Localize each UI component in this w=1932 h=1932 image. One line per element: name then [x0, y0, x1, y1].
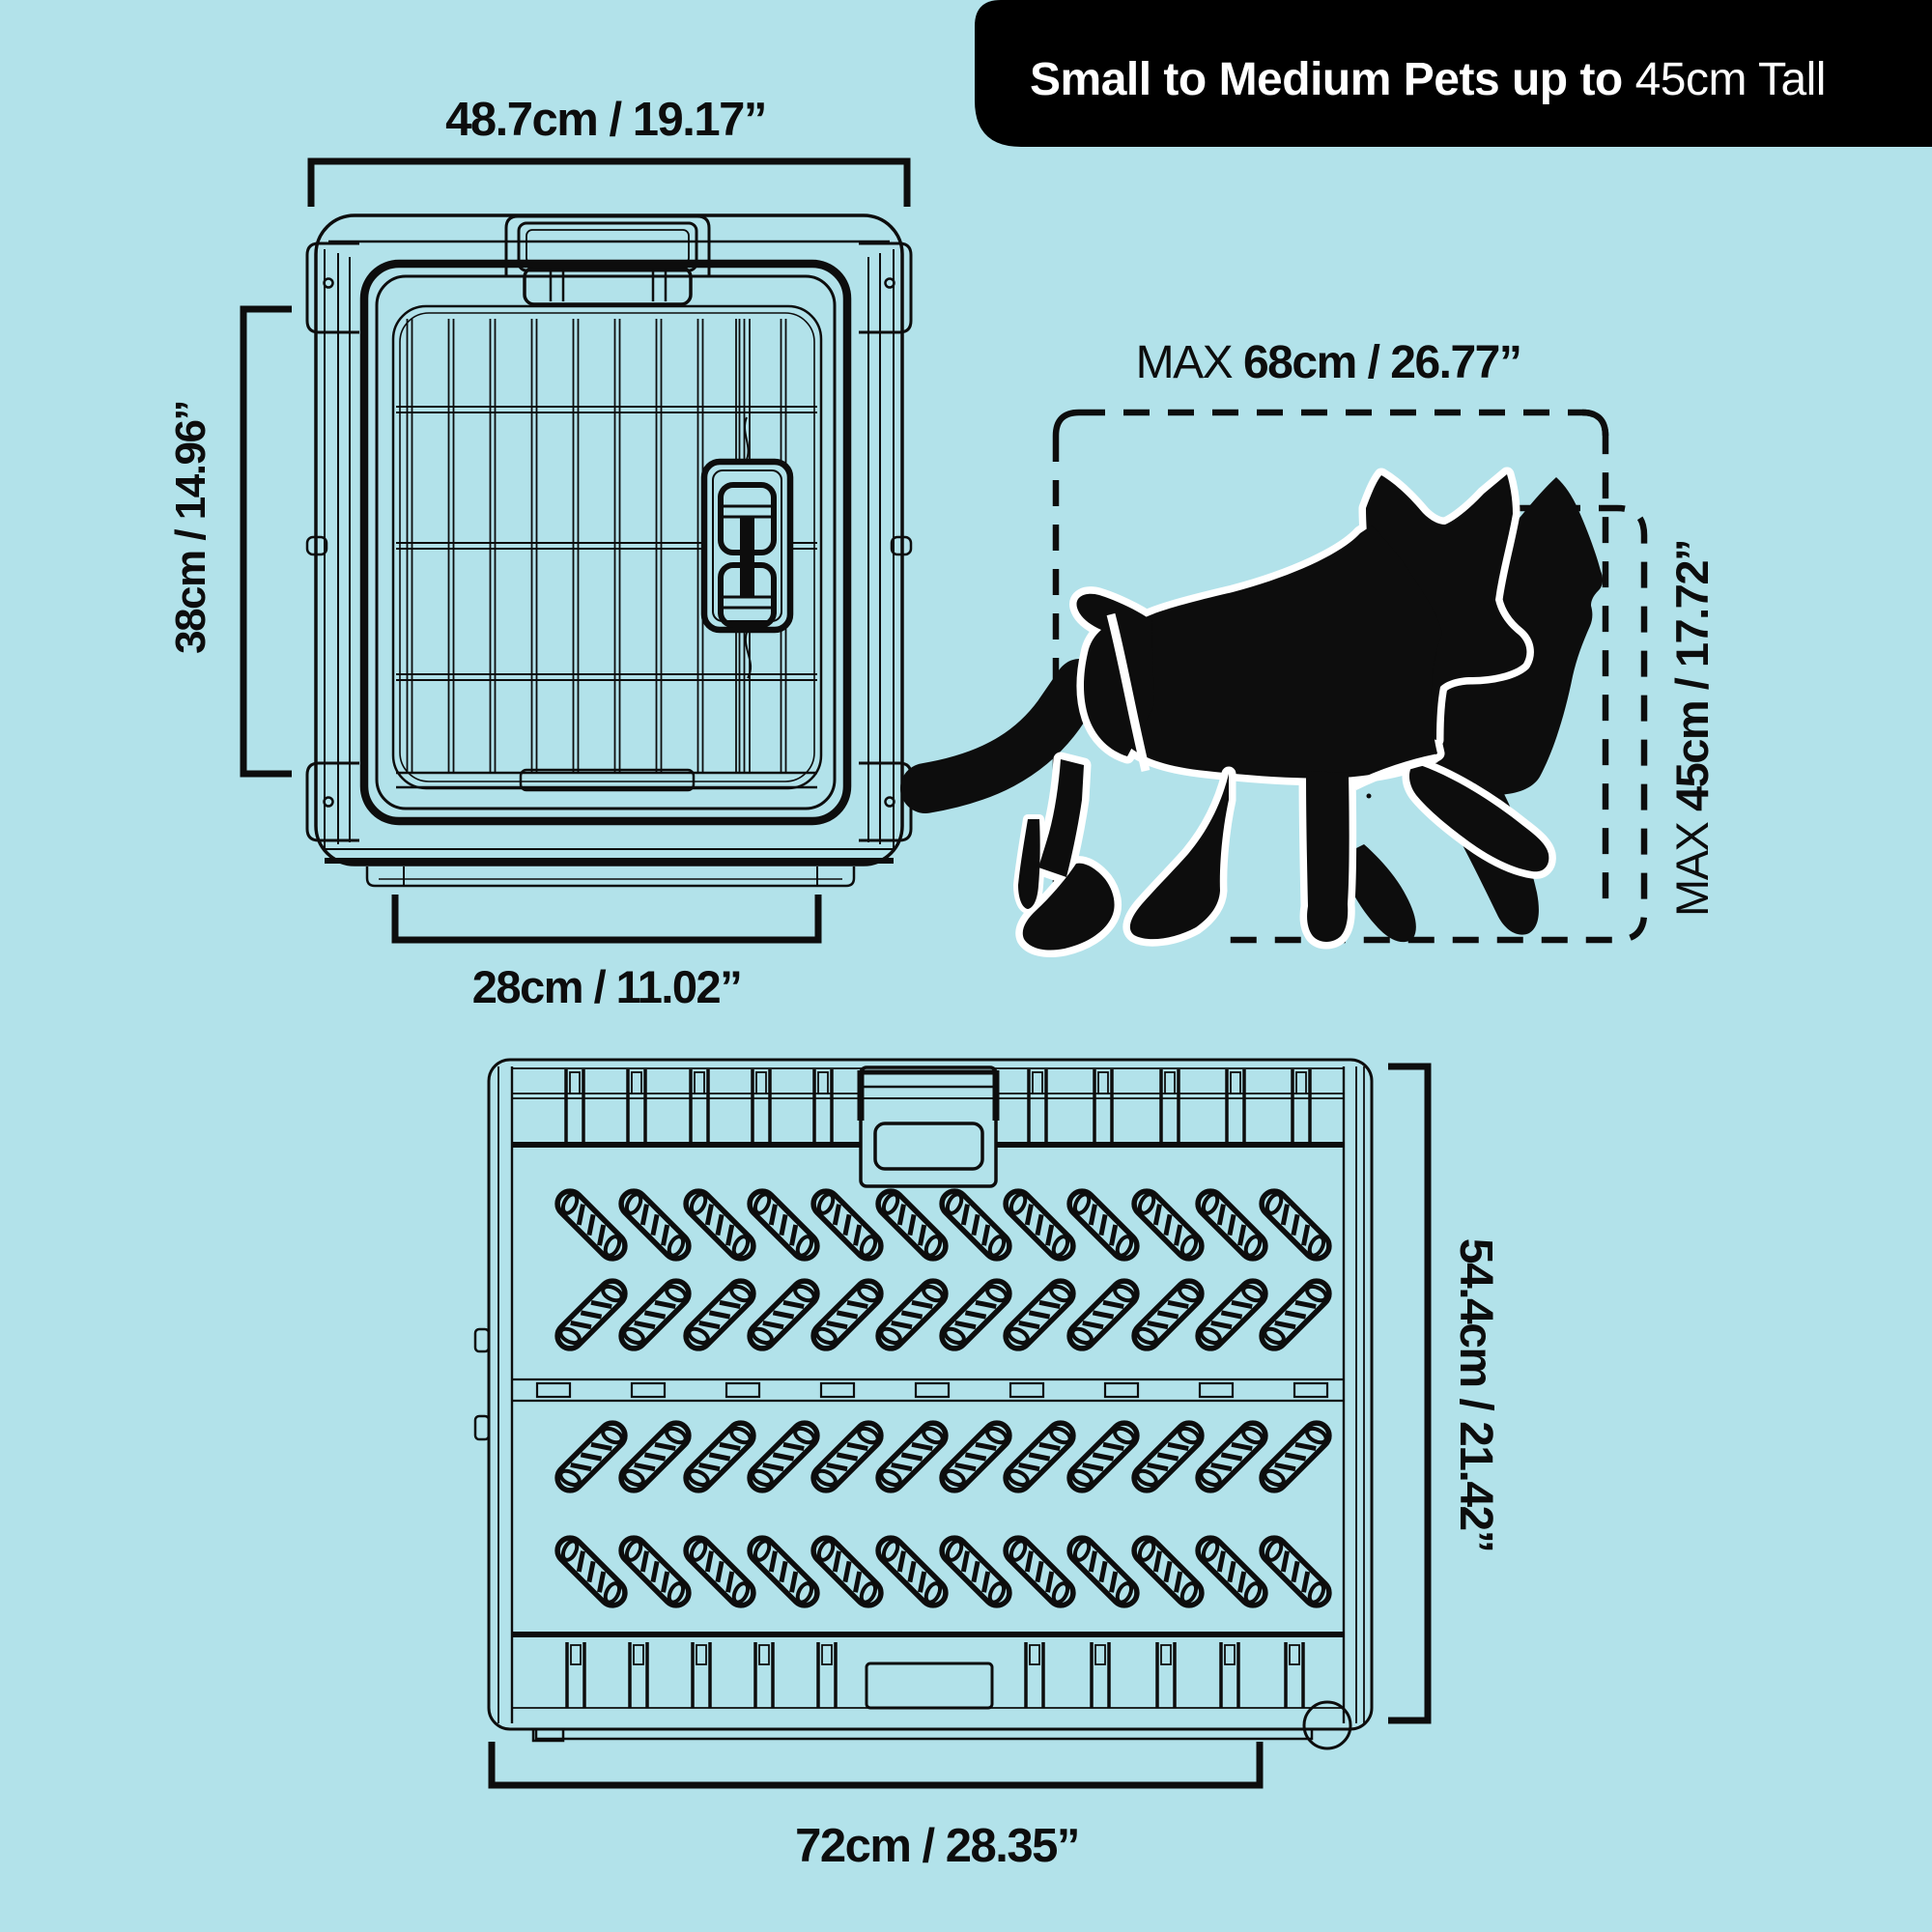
- svg-text:Small to Medium Pets up to 45c: Small to Medium Pets up to 45cm Tall: [1030, 54, 1826, 105]
- svg-text:72cm / 28.35”: 72cm / 28.35”: [795, 1820, 1079, 1872]
- svg-text:MAX 68cm / 26.77”: MAX 68cm / 26.77”: [1136, 337, 1521, 388]
- svg-text:54.4cm / 21.42”: 54.4cm / 21.42”: [1450, 1238, 1501, 1551]
- svg-text:48.7cm / 19.17”: 48.7cm / 19.17”: [445, 94, 766, 146]
- svg-text:38cm / 14.96”: 38cm / 14.96”: [167, 401, 214, 654]
- svg-text:MAX 45cm / 17.72”: MAX 45cm / 17.72”: [1666, 540, 1718, 917]
- svg-text:28cm / 11.02”: 28cm / 11.02”: [472, 961, 741, 1012]
